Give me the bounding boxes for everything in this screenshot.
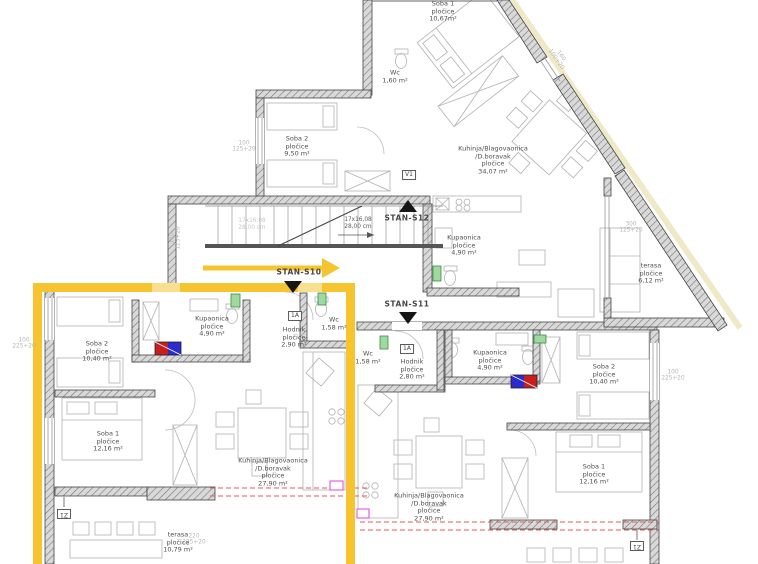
entry-label-s11: 1A bbox=[400, 344, 414, 354]
room-label-s10-hodnik: Hodnik pločice 2,90 m² bbox=[281, 327, 306, 350]
kitchen-counter-s10 bbox=[303, 352, 345, 490]
terrace-table-s10 bbox=[70, 540, 162, 558]
apartment-label-s11: STAN-S11 bbox=[385, 300, 430, 309]
room-label-s11-wc: Wc 1,58 m² bbox=[355, 350, 380, 365]
floor-plan: Soba 1 pločice 10,67m² Wc 1,60 m² Soba 2… bbox=[0, 0, 758, 564]
sink-s11 bbox=[496, 333, 528, 345]
dimension-label: 100125+20 bbox=[232, 141, 255, 154]
toilet-s11-bath bbox=[523, 350, 534, 365]
room-label-s10-kupaonica: Kupaonica pločice 4,90 m² bbox=[195, 316, 229, 339]
dining-table-s10 bbox=[238, 408, 286, 458]
room-label-s11-kupaonica: Kupaonica pločice 4,90 m² bbox=[473, 350, 507, 373]
room-label-s12-soba2: Soba 2 pločice 9,50 m² bbox=[284, 136, 309, 159]
room-label-s11-kuhinja: Kuhinja/Blagovaonica /D.boravak pločice … bbox=[394, 493, 464, 524]
window-label-s10-z1: Z1 bbox=[57, 509, 71, 519]
room-label-s10-wc: Wc 1,58 m² bbox=[321, 316, 346, 331]
toilet-s12-wc bbox=[396, 54, 407, 69]
dining-table-s11 bbox=[416, 436, 462, 488]
dimension-label: 170125+20 bbox=[170, 226, 183, 249]
sink-s10 bbox=[190, 299, 218, 311]
toilet-s12-bath bbox=[445, 271, 456, 286]
stairs-note: 17x16,08 28,00 cm bbox=[344, 217, 371, 231]
window-label-s11-z1: Z1 bbox=[630, 541, 644, 551]
room-label-s11-soba2: Soba 2 pločice 10,40 m² bbox=[589, 364, 619, 387]
stairs-note-faint: 17x16,08 28,00 cm bbox=[238, 218, 265, 232]
armchair-s12 bbox=[558, 289, 594, 317]
bed bbox=[577, 392, 649, 419]
kitchen-counter-s11 bbox=[358, 385, 398, 518]
room-label-s12-wc: Wc 1,60 m² bbox=[382, 69, 407, 84]
dimension-label: 100225+20 bbox=[661, 370, 684, 383]
room-label-s12-kuhinja: Kuhinja/Blagovaonica /D.boravak pločice … bbox=[458, 146, 528, 177]
vent-label-v1: V1 bbox=[402, 170, 416, 180]
room-label-s12-terasa: terasa pločice 6,12 m² bbox=[638, 263, 663, 286]
dimension-label: 100225+20 bbox=[12, 338, 35, 351]
room-label-s10-soba1: Soba 1 pločice 12,16 m² bbox=[93, 431, 123, 454]
room-label-s11-soba1: Soba 1 pločice 12,16 m² bbox=[579, 464, 609, 487]
dimension-label: 300125+20 bbox=[619, 222, 642, 235]
room-label-s12-kupaonica: Kupaonica pločice 4,90 m² bbox=[447, 235, 481, 258]
room-label-s10-kuhinja: Kuhinja/Blagovaonica /D.boravak pločice … bbox=[238, 458, 308, 489]
washer-icon-s10 bbox=[155, 342, 181, 355]
entry-label-s10: 1A bbox=[288, 311, 302, 321]
apartment-label-s12: STAN-S12 bbox=[385, 214, 430, 223]
bed bbox=[577, 332, 649, 359]
dimension-label: 220225+20 bbox=[182, 534, 205, 547]
apartment-label-s10: STAN-S10 bbox=[277, 268, 322, 277]
bed bbox=[267, 160, 337, 187]
room-label-s10-soba2: Soba 2 pločice 10,40 m² bbox=[82, 341, 112, 364]
facade-insulation-line bbox=[508, 0, 740, 328]
washer-icon-s11 bbox=[511, 375, 537, 388]
bed bbox=[267, 103, 337, 130]
wardrobe-s12 bbox=[438, 56, 519, 127]
room-label-s11-hodnik: Hodnik pločice 2,80 m² bbox=[399, 359, 424, 382]
room-label-s12-soba1: Soba 1 pločice 10,67m² bbox=[429, 1, 457, 24]
